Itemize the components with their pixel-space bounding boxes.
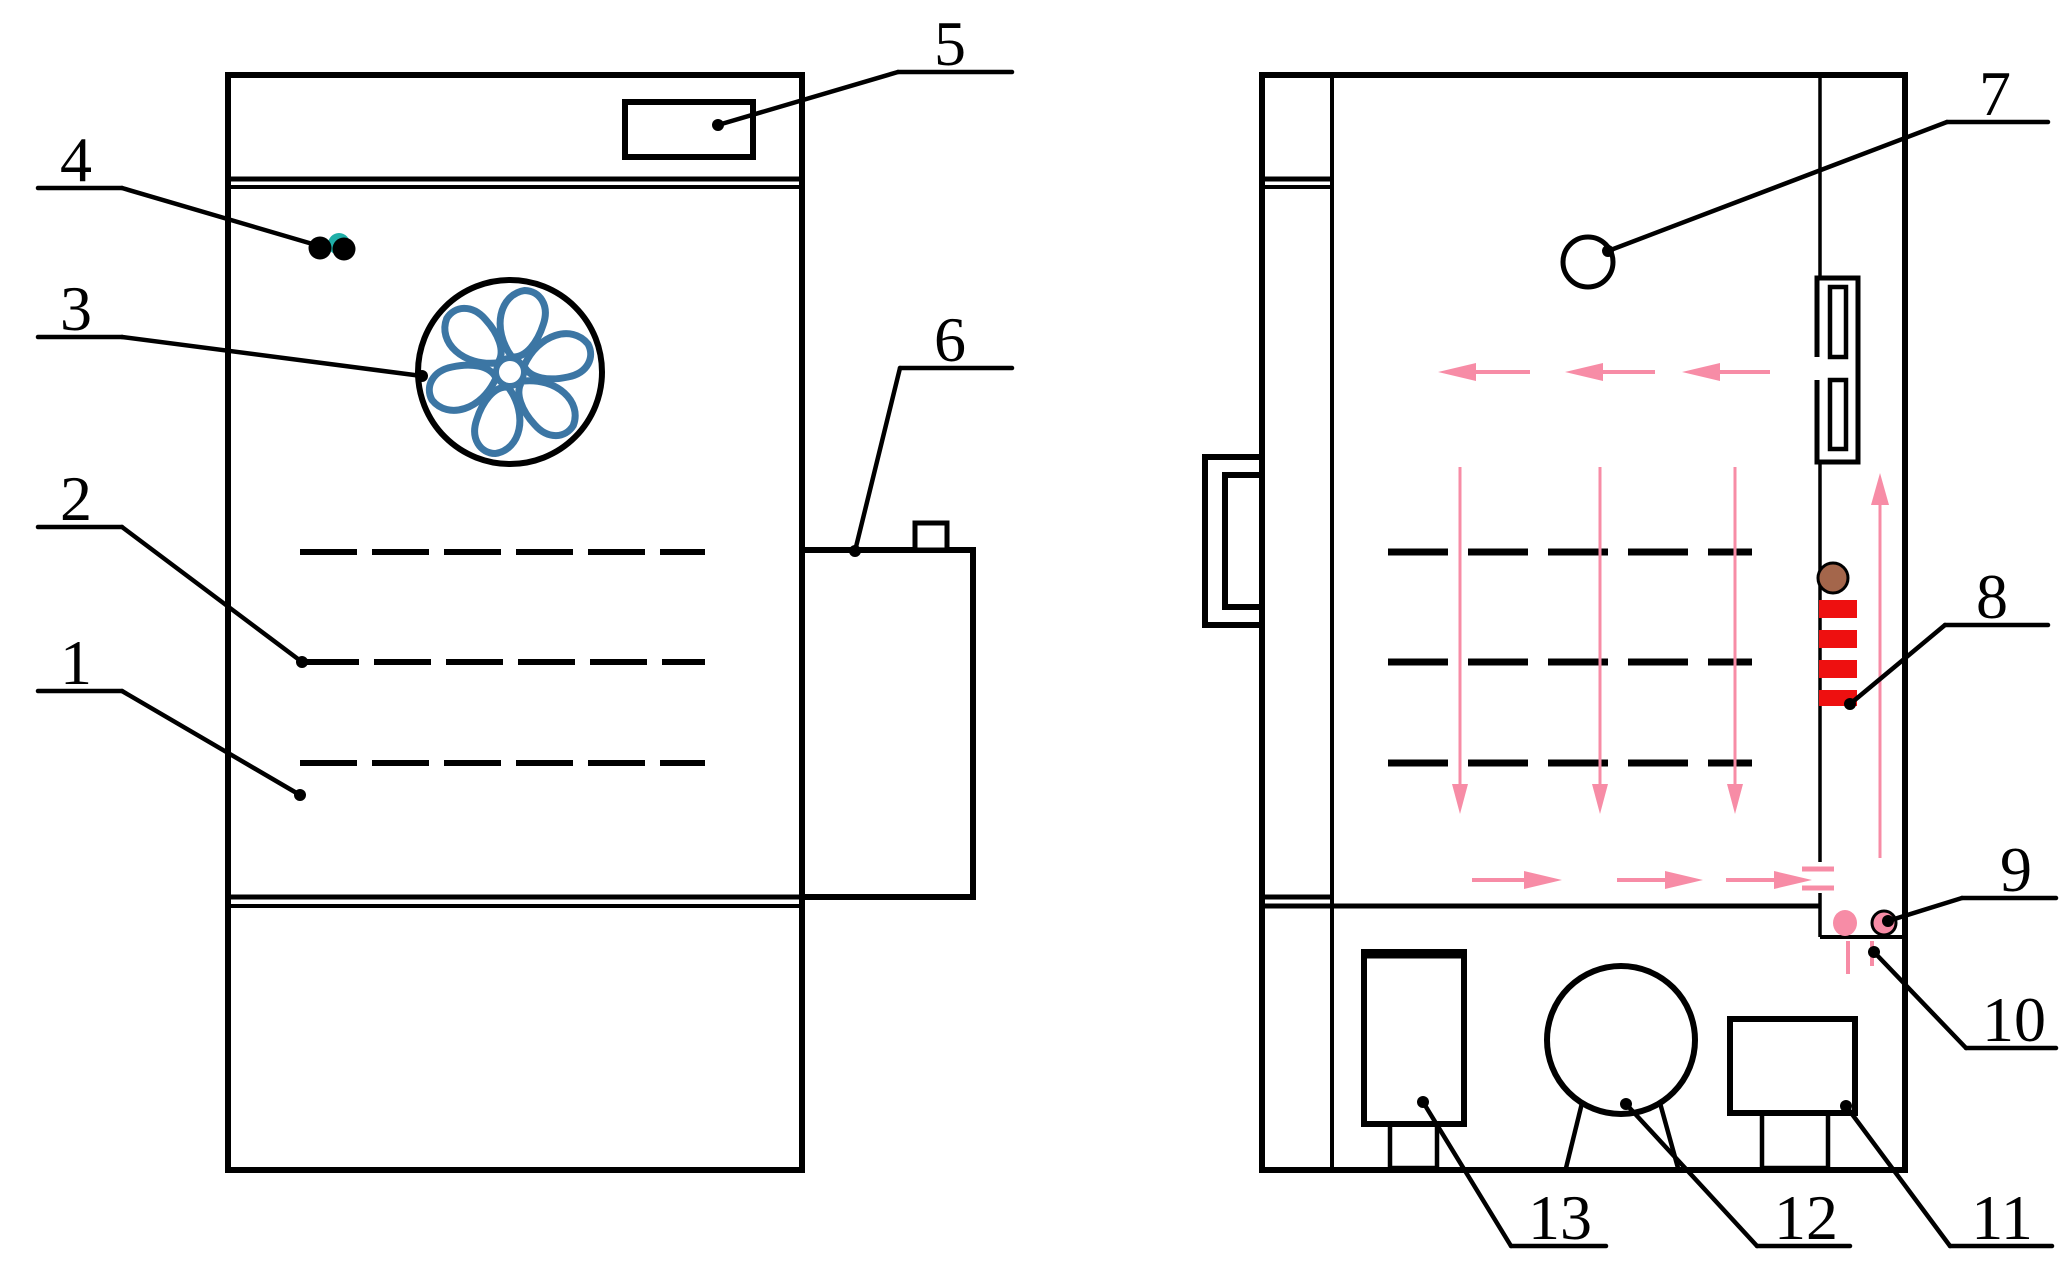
section-shelves bbox=[1388, 552, 1752, 763]
side-tank bbox=[802, 523, 973, 897]
arrowhead-down-icon bbox=[1592, 784, 1608, 814]
callout-number: 7 bbox=[1979, 58, 2011, 129]
callout-3: 3 bbox=[38, 273, 428, 382]
callout-leader bbox=[855, 368, 900, 551]
fan-hub bbox=[496, 358, 524, 386]
test-port-circle bbox=[1563, 237, 1613, 287]
condenser-base bbox=[1762, 1113, 1828, 1168]
callout-6: 6 bbox=[849, 304, 1012, 557]
callout-dot bbox=[1868, 946, 1880, 958]
handle-inner bbox=[1225, 475, 1262, 607]
callout-leader bbox=[122, 337, 422, 376]
machine-room bbox=[1364, 952, 1855, 1168]
callout-number: 13 bbox=[1528, 1182, 1592, 1253]
callout-11: 11 bbox=[1840, 1100, 2052, 1253]
callout-dot bbox=[849, 545, 861, 557]
front-view bbox=[228, 75, 973, 1170]
airflow-down-streams bbox=[1460, 467, 1735, 786]
handle-outer bbox=[1205, 457, 1262, 625]
callout-leader bbox=[1626, 1104, 1757, 1246]
electric-box-base bbox=[1390, 1124, 1437, 1168]
callout-number: 12 bbox=[1774, 1182, 1838, 1253]
callout-4: 4 bbox=[38, 124, 316, 245]
side-tank-outline bbox=[802, 550, 973, 897]
arrowhead-left-icon bbox=[1565, 363, 1603, 381]
arrowhead-down-icon bbox=[1727, 784, 1743, 814]
callout-number: 6 bbox=[934, 304, 966, 375]
callout-number: 3 bbox=[60, 273, 92, 344]
callout-number: 8 bbox=[1976, 561, 2008, 632]
heater-stripe bbox=[1819, 600, 1857, 618]
callout-8: 8 bbox=[1844, 561, 2048, 710]
callout-1: 1 bbox=[38, 627, 306, 801]
callout-dot bbox=[1844, 698, 1856, 710]
display-panel bbox=[625, 102, 753, 157]
callout-leader bbox=[1608, 122, 1947, 251]
arrowhead-left-icon bbox=[1438, 363, 1476, 381]
callout-9: 9 bbox=[1882, 834, 2056, 927]
callout-number: 10 bbox=[1982, 984, 2046, 1055]
callout-leader bbox=[1888, 898, 1962, 921]
callout-leader bbox=[122, 527, 302, 662]
callout-dot bbox=[416, 370, 428, 382]
callout-number: 11 bbox=[1971, 1182, 2033, 1253]
arrowhead-up-icon bbox=[1871, 473, 1889, 505]
side-tank-cap bbox=[915, 523, 947, 550]
callout-dot bbox=[1602, 245, 1614, 257]
incubator-diagram: 1 2 3 4 5 6 bbox=[0, 0, 2063, 1267]
electric-box bbox=[1364, 952, 1464, 1124]
callout-dot bbox=[1840, 1100, 1852, 1112]
compressor-circle bbox=[1547, 966, 1695, 1114]
callout-leader bbox=[1874, 952, 1966, 1048]
callout-leader bbox=[1846, 1106, 1950, 1246]
callout-dot bbox=[294, 789, 306, 801]
side-section-view bbox=[1205, 75, 1905, 1170]
callout-7: 7 bbox=[1602, 58, 2048, 257]
arrowhead-left-icon bbox=[1682, 363, 1720, 381]
grille-frame-notch bbox=[1813, 357, 1823, 380]
arrowhead-right-icon bbox=[1524, 871, 1562, 889]
callout-leader bbox=[122, 188, 316, 245]
callouts: 1 2 3 4 5 6 bbox=[38, 8, 2056, 1253]
callout-leader bbox=[718, 72, 898, 125]
callout-dot bbox=[1620, 1098, 1632, 1110]
arrowhead-down-icon bbox=[1452, 784, 1468, 814]
duct-grille bbox=[1813, 278, 1858, 462]
sensor-bulb-icon bbox=[1818, 563, 1848, 593]
callout-number: 4 bbox=[60, 124, 92, 195]
condensate-drip-marks bbox=[1848, 941, 1872, 974]
return-opening-marks bbox=[1802, 869, 1834, 888]
diagram-canvas: 1 2 3 4 5 6 bbox=[0, 0, 2063, 1267]
callout-10: 10 bbox=[1868, 946, 2056, 1055]
grille-slot bbox=[1830, 287, 1846, 357]
grille-slot bbox=[1830, 380, 1846, 449]
callout-12: 12 bbox=[1620, 1098, 1850, 1253]
control-knob-right-icon bbox=[333, 238, 356, 261]
callout-number: 9 bbox=[2000, 834, 2032, 905]
callout-number: 5 bbox=[934, 8, 966, 79]
callout-dot bbox=[1882, 915, 1894, 927]
arrowhead-right-icon bbox=[1665, 871, 1703, 889]
heater-stripes bbox=[1819, 600, 1857, 706]
control-knob-left-icon bbox=[309, 237, 332, 260]
front-shelves bbox=[300, 552, 705, 763]
compressor-leg bbox=[1566, 1103, 1582, 1168]
heater-stripe bbox=[1819, 660, 1857, 678]
callout-leader bbox=[122, 691, 300, 795]
callout-number: 2 bbox=[60, 463, 92, 534]
drain-port-left-icon bbox=[1833, 910, 1857, 936]
door-handle bbox=[1205, 457, 1262, 625]
callout-dot bbox=[296, 656, 308, 668]
callout-number: 1 bbox=[60, 627, 92, 698]
heater-stripe bbox=[1819, 630, 1857, 648]
callout-dot bbox=[1417, 1096, 1429, 1108]
callout-5: 5 bbox=[712, 8, 1012, 131]
callout-dot bbox=[712, 119, 724, 131]
callout-leader bbox=[1850, 625, 1945, 704]
condenser-box bbox=[1730, 1019, 1855, 1113]
fan-icon bbox=[418, 280, 602, 464]
